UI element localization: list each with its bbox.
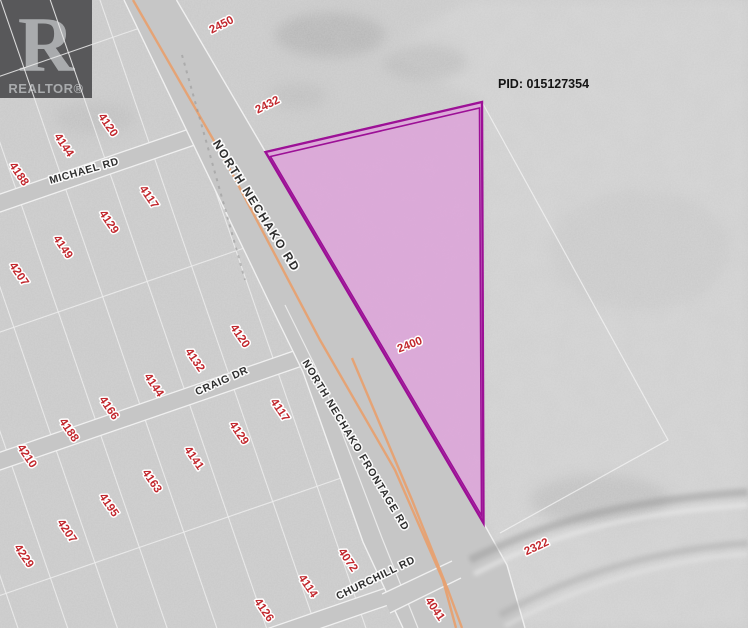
property-map[interactable]: R REALTOR®: [0, 0, 748, 628]
pid-label: PID: 015127354: [498, 77, 589, 91]
map-canvas[interactable]: R REALTOR®: [0, 0, 748, 628]
